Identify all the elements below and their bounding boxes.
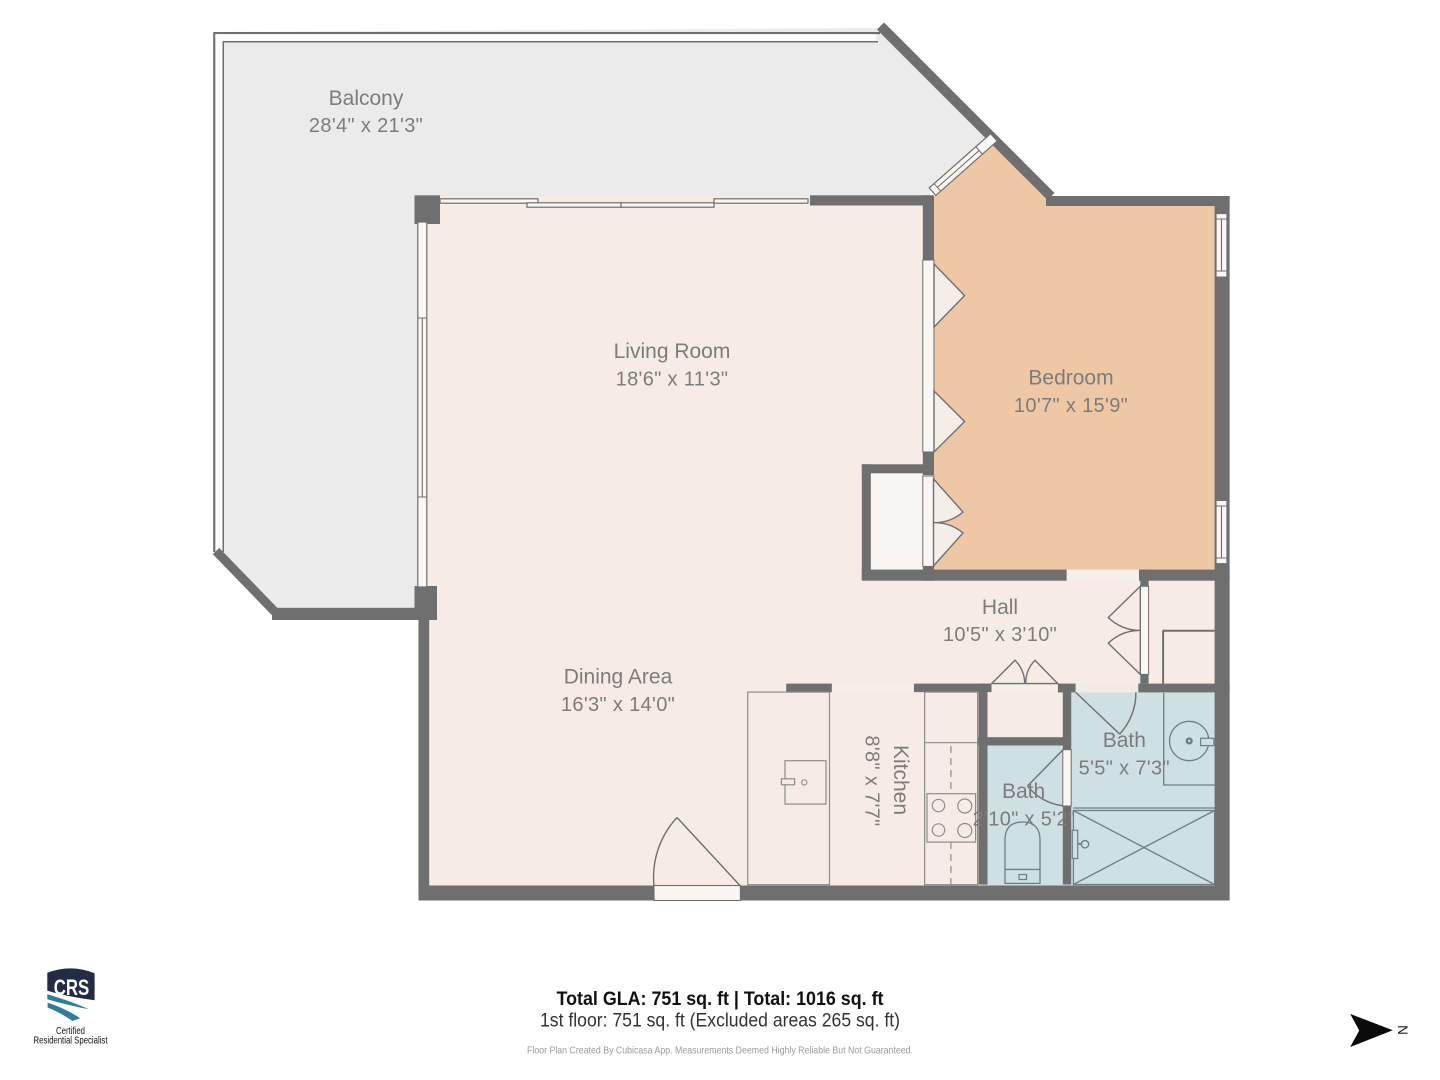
svg-text:2'10" x 5'2": 2'10" x 5'2": [973, 809, 1076, 831]
svg-text:Kitchen: Kitchen: [889, 745, 912, 815]
svg-text:N: N: [1395, 1025, 1410, 1035]
svg-text:Bath: Bath: [1103, 729, 1146, 752]
svg-text:10'5" x 3'10": 10'5" x 3'10": [943, 624, 1057, 646]
svg-text:1st floor: 751 sq. ft (Exclude: 1st floor: 751 sq. ft (Excluded areas 26…: [540, 1010, 900, 1032]
svg-text:8'8" x 7'7": 8'8" x 7'7": [861, 735, 883, 826]
svg-text:Hall: Hall: [982, 596, 1018, 619]
svg-text:Floor Plan Created By Cubicasa: Floor Plan Created By Cubicasa App. Meas…: [527, 1045, 913, 1057]
svg-text:Residential Specialist: Residential Specialist: [34, 1035, 108, 1046]
svg-text:28'4" x 21'3": 28'4" x 21'3": [309, 115, 423, 137]
svg-text:Bedroom: Bedroom: [1028, 367, 1113, 390]
svg-text:16'3" x 14'0": 16'3" x 14'0": [561, 694, 675, 716]
svg-text:5'5" x 7'3": 5'5" x 7'3": [1079, 758, 1170, 780]
svg-text:Living Room: Living Room: [614, 340, 731, 363]
svg-text:Total GLA: 751 sq. ft | Total:: Total GLA: 751 sq. ft | Total: 1016 sq. …: [557, 988, 884, 1010]
svg-text:Balcony: Balcony: [329, 87, 404, 110]
svg-text:Dining Area: Dining Area: [564, 666, 673, 689]
svg-text:Bath: Bath: [1002, 780, 1045, 803]
svg-text:CRS: CRS: [54, 975, 90, 1000]
svg-text:10'7" x 15'9": 10'7" x 15'9": [1014, 395, 1128, 417]
svg-text:18'6" x 11'3": 18'6" x 11'3": [616, 369, 729, 391]
